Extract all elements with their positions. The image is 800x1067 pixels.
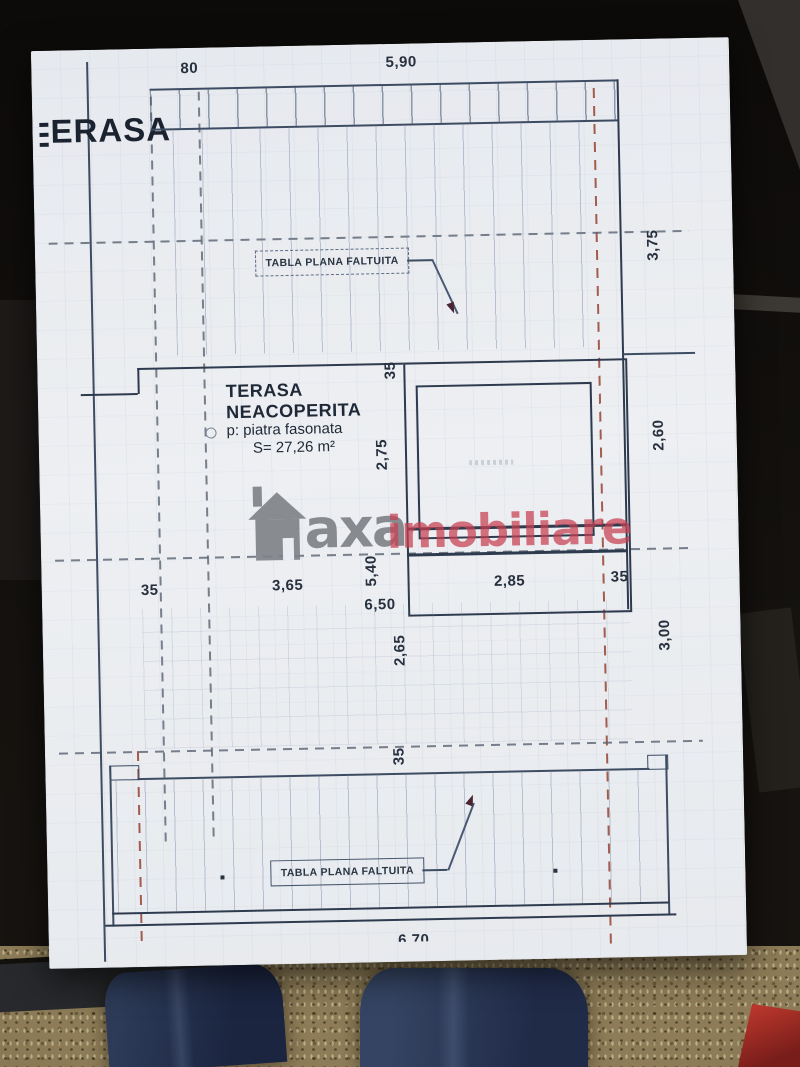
terrace-name-2: NEACOPERITA <box>226 399 362 422</box>
dim-bottom-total-clip: 6,70 <box>369 931 459 943</box>
faint-grid <box>142 599 633 749</box>
terrace-name-1: TERASA <box>226 379 362 402</box>
left-margin-line <box>86 62 106 962</box>
dim-row-span-left: 3,65 <box>259 576 315 594</box>
bottom-band-right-edge <box>665 754 670 915</box>
terrace-finish: p: piatra fasonata <box>226 420 362 440</box>
faint-annotation <box>469 459 513 465</box>
bottom-band-lower-line-b <box>105 913 676 926</box>
dim-right-middle: 2,60 <box>650 407 668 463</box>
terrace-label: TERASA NEACOPERITA p: piatra fasonata S=… <box>226 379 363 458</box>
house-icon <box>248 486 308 563</box>
dim-top-width: 5,90 <box>361 53 441 72</box>
floor-plan-sheet: ERASA 80 5,90 TABLA PLANA FALTUITA 3,75 … <box>31 37 747 969</box>
terrace-area: S= 27,26 m² <box>227 437 363 457</box>
roof-label-top: TABLA PLANA FALTUITA <box>265 255 398 270</box>
chair-leg <box>737 607 800 792</box>
roof-label-top-box: TABLA PLANA FALTUITA <box>255 248 409 277</box>
dot-mark-left <box>220 875 224 879</box>
roof-label-bottom: TABLA PLANA FALTUITA <box>281 865 414 880</box>
roof-seams-top <box>172 121 598 355</box>
watermark-imobiliare: imobiliare <box>386 501 632 559</box>
circle-mark <box>205 427 216 438</box>
terrace-step-riser <box>137 368 139 394</box>
photo-scene: ERASA 80 5,90 TABLA PLANA FALTUITA 3,75 … <box>0 0 800 1067</box>
dim-terrace-depth: 2,75 <box>373 426 391 482</box>
dim-row-left-wall: 35 <box>122 581 178 599</box>
clipped-letter-icon <box>39 123 48 147</box>
dim-top-left: 80 <box>161 59 217 77</box>
terrace-step-line <box>81 393 138 396</box>
terrace-top-wall <box>137 363 403 370</box>
bottom-band-left-edge <box>109 766 114 927</box>
dot-mark-right <box>553 869 557 873</box>
left-jeans-leg <box>103 962 288 1067</box>
chair-slat <box>732 294 800 313</box>
dim-right-lower: 3,00 <box>656 607 674 663</box>
dim-wall-top: 35 <box>381 342 399 398</box>
dim-row-span-right: 2,85 <box>481 572 537 590</box>
roof-label-bottom-box: TABLA PLANA FALTUITA <box>270 857 424 886</box>
dim-right-upper: 3,75 <box>644 217 662 273</box>
right-jeans-leg <box>360 968 588 1067</box>
right-tick-upper <box>623 352 695 355</box>
roof-seams-bottom <box>115 769 663 913</box>
dim-bottom-total: 6,70 <box>386 931 442 942</box>
dim-row-right-wall: 35 <box>591 568 647 586</box>
